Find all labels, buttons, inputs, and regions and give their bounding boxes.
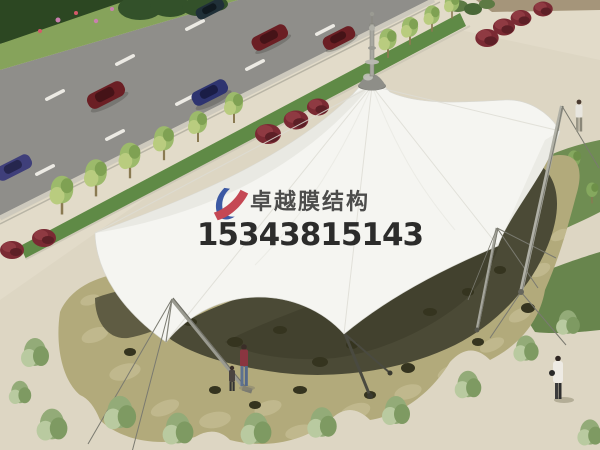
- red-bush: [32, 229, 56, 247]
- red-bush: [511, 10, 532, 26]
- red-bush: [307, 99, 329, 116]
- red-bush: [0, 241, 24, 259]
- red-bush: [533, 2, 553, 17]
- scene-rendering: [0, 0, 600, 450]
- rendering-image: 卓越膜结构 15343815143: [0, 0, 600, 450]
